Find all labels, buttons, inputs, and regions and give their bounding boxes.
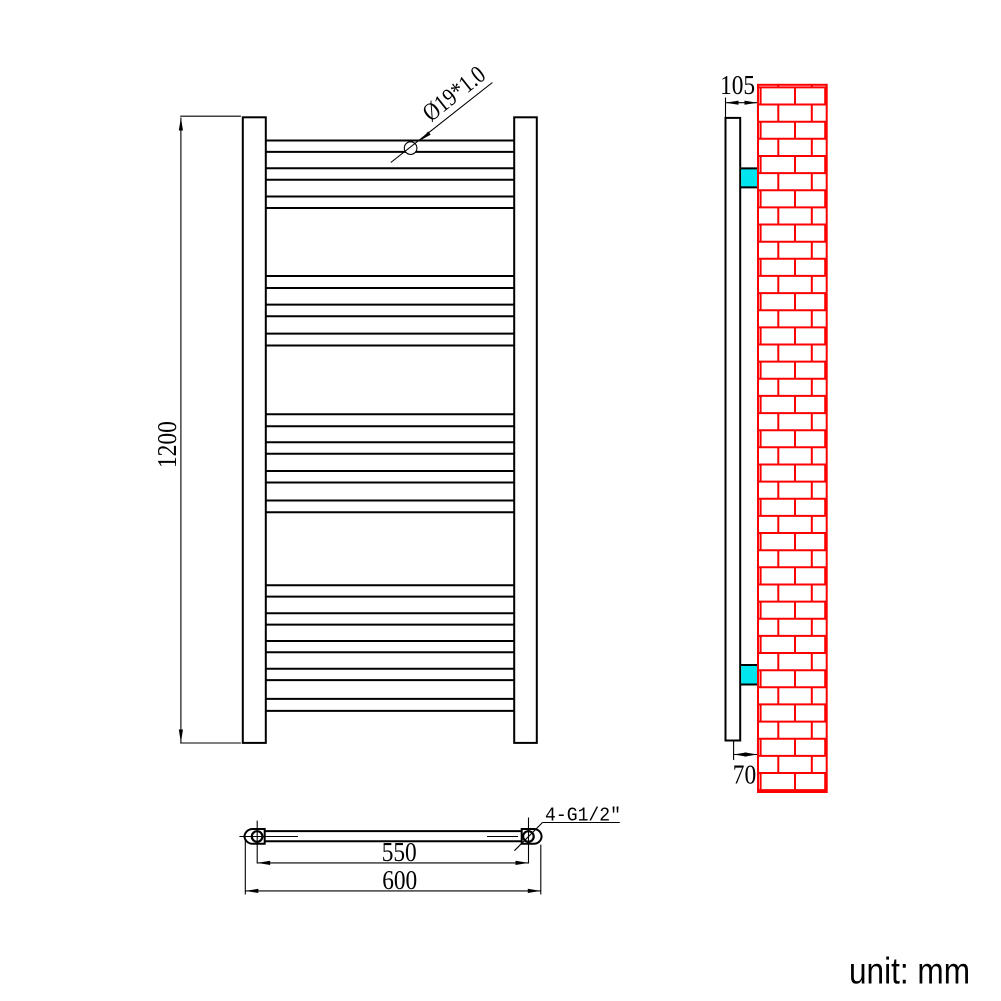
svg-text:unit: mm: unit: mm xyxy=(849,951,970,992)
svg-text:4-G1/2″: 4-G1/2″ xyxy=(545,804,621,826)
svg-text:600: 600 xyxy=(382,865,417,895)
svg-text:1200: 1200 xyxy=(152,421,182,468)
svg-text:105: 105 xyxy=(720,70,755,100)
svg-text:70: 70 xyxy=(733,760,756,790)
svg-text:550: 550 xyxy=(382,837,417,867)
